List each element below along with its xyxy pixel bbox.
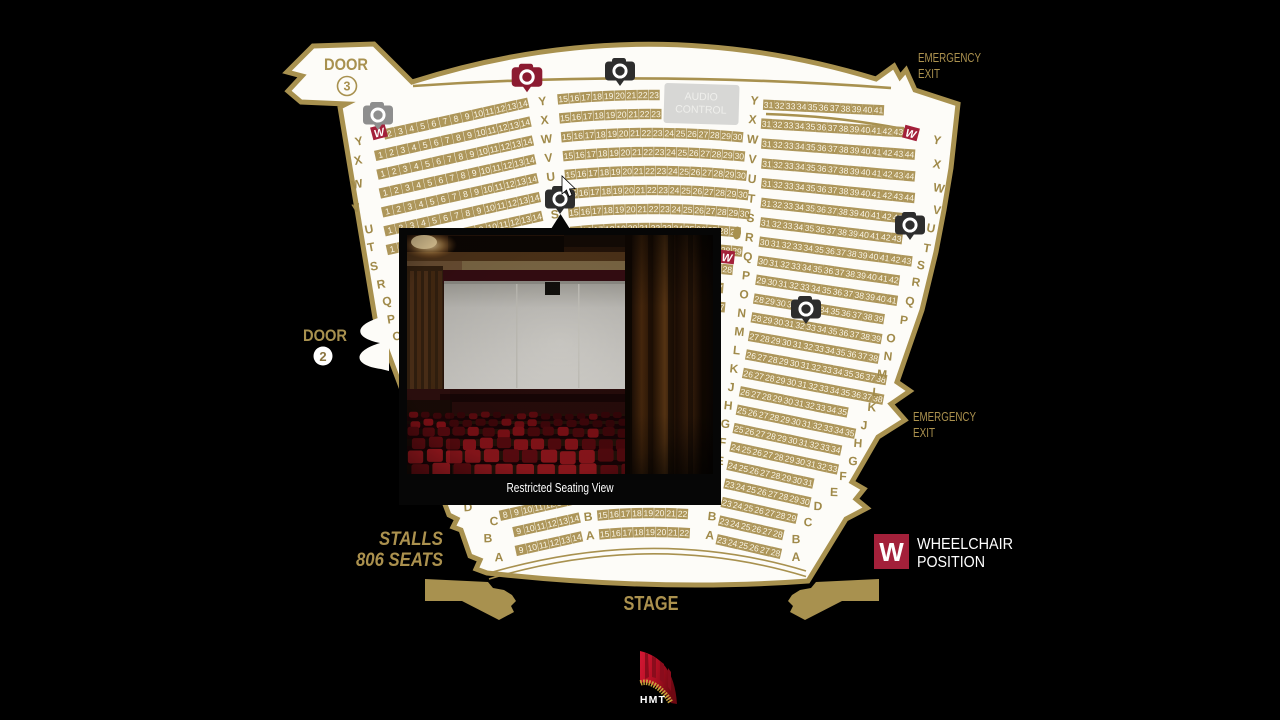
- svg-text:35: 35: [821, 285, 832, 296]
- svg-text:40: 40: [860, 125, 870, 136]
- svg-text:G: G: [848, 454, 858, 468]
- svg-text:Y: Y: [750, 93, 759, 108]
- svg-text:36: 36: [825, 245, 836, 256]
- svg-text:EMERGENCY: EMERGENCY: [918, 51, 982, 65]
- svg-text:26: 26: [692, 186, 702, 196]
- svg-text:40: 40: [860, 188, 871, 199]
- svg-text:STAGE: STAGE: [624, 593, 679, 615]
- svg-text:21: 21: [630, 128, 640, 138]
- svg-text:34: 34: [803, 242, 814, 253]
- svg-text:29: 29: [762, 314, 773, 325]
- svg-text:M: M: [876, 367, 887, 382]
- svg-text:U: U: [747, 172, 757, 187]
- svg-text:17: 17: [586, 149, 596, 160]
- svg-text:20: 20: [626, 204, 636, 214]
- svg-text:34: 34: [824, 345, 835, 357]
- svg-text:28: 28: [713, 168, 723, 179]
- svg-text:27: 27: [704, 187, 714, 198]
- svg-text:23: 23: [655, 147, 665, 157]
- svg-text:18: 18: [632, 508, 642, 518]
- svg-text:30: 30: [738, 189, 749, 200]
- svg-text:32: 32: [789, 280, 800, 291]
- svg-text:28: 28: [717, 207, 728, 218]
- svg-text:Q: Q: [743, 249, 754, 264]
- svg-text:3: 3: [344, 80, 351, 94]
- svg-text:34: 34: [794, 121, 804, 132]
- svg-text:W: W: [879, 537, 904, 567]
- svg-text:32: 32: [773, 179, 784, 190]
- svg-text:38: 38: [868, 352, 879, 364]
- svg-text:R: R: [744, 230, 754, 245]
- svg-text:31: 31: [762, 159, 773, 170]
- svg-text:15: 15: [562, 131, 573, 142]
- svg-text:V: V: [544, 151, 554, 166]
- svg-text:36: 36: [816, 122, 826, 133]
- svg-text:O: O: [885, 331, 896, 346]
- svg-text:U: U: [546, 169, 556, 184]
- svg-text:17: 17: [592, 205, 602, 216]
- svg-text:30: 30: [732, 131, 743, 142]
- svg-text:28: 28: [722, 264, 733, 275]
- svg-text:41: 41: [870, 230, 881, 241]
- svg-text:36: 36: [823, 265, 834, 276]
- svg-text:38: 38: [860, 331, 871, 342]
- svg-text:41: 41: [873, 105, 883, 115]
- svg-text:31: 31: [784, 318, 795, 329]
- svg-text:32: 32: [773, 119, 783, 130]
- svg-text:25: 25: [681, 186, 691, 196]
- svg-text:41: 41: [871, 168, 882, 179]
- svg-text:S: S: [746, 211, 755, 226]
- svg-text:41: 41: [879, 252, 890, 263]
- svg-text:15: 15: [598, 510, 609, 521]
- svg-text:17: 17: [583, 111, 593, 122]
- svg-text:22: 22: [649, 204, 659, 214]
- svg-text:X: X: [540, 113, 550, 128]
- svg-text:2: 2: [319, 349, 326, 364]
- svg-text:17: 17: [590, 187, 600, 198]
- svg-text:18: 18: [594, 110, 604, 121]
- svg-text:32: 32: [780, 259, 791, 270]
- svg-text:36: 36: [817, 143, 827, 154]
- svg-text:36: 36: [816, 184, 827, 195]
- svg-text:27: 27: [698, 129, 708, 140]
- svg-text:39: 39: [849, 207, 860, 218]
- svg-text:42: 42: [888, 274, 899, 285]
- svg-text:16: 16: [578, 187, 589, 198]
- svg-text:23: 23: [658, 185, 668, 195]
- svg-text:23: 23: [651, 109, 661, 119]
- svg-text:31: 31: [762, 119, 772, 130]
- svg-text:36: 36: [838, 327, 849, 338]
- svg-text:EXIT: EXIT: [918, 67, 940, 81]
- svg-text:35: 35: [805, 183, 816, 194]
- svg-text:39: 39: [849, 145, 859, 156]
- svg-text:V: V: [748, 152, 757, 167]
- svg-text:36: 36: [819, 102, 829, 112]
- svg-text:36: 36: [817, 163, 828, 174]
- svg-text:35: 35: [835, 346, 846, 358]
- svg-text:H: H: [853, 436, 863, 451]
- svg-text:19: 19: [643, 508, 653, 518]
- svg-text:30: 30: [789, 358, 800, 370]
- svg-text:E: E: [830, 485, 838, 499]
- svg-text:X: X: [748, 112, 757, 127]
- svg-text:42: 42: [881, 211, 892, 222]
- svg-text:G: G: [720, 416, 731, 431]
- svg-text:19: 19: [614, 205, 624, 215]
- svg-text:27: 27: [700, 148, 710, 159]
- svg-text:33: 33: [783, 120, 793, 131]
- svg-text:38: 38: [840, 103, 850, 113]
- svg-text:21: 21: [636, 185, 646, 195]
- svg-text:30: 30: [767, 277, 778, 288]
- svg-text:18: 18: [603, 205, 613, 215]
- svg-text:39: 39: [849, 124, 859, 135]
- svg-text:22: 22: [643, 147, 653, 157]
- svg-text:23: 23: [657, 166, 667, 176]
- svg-text:41: 41: [886, 295, 897, 306]
- svg-text:17: 17: [581, 92, 591, 103]
- svg-text:POSITION: POSITION: [917, 554, 985, 571]
- svg-text:35: 35: [812, 264, 823, 275]
- svg-text:32: 32: [771, 219, 782, 230]
- svg-text:A: A: [494, 550, 503, 564]
- svg-text:29: 29: [725, 169, 736, 180]
- svg-text:AUDIO: AUDIO: [684, 91, 718, 104]
- svg-text:37: 37: [827, 185, 838, 196]
- svg-text:39: 39: [871, 333, 882, 344]
- svg-text:HMT: HMT: [640, 694, 666, 706]
- svg-text:35: 35: [805, 121, 815, 132]
- svg-text:40: 40: [860, 209, 871, 220]
- svg-text:C: C: [804, 515, 813, 529]
- svg-text:39: 39: [850, 166, 861, 177]
- svg-text:43: 43: [891, 233, 902, 244]
- svg-text:42: 42: [882, 169, 893, 180]
- svg-text:20: 20: [624, 185, 634, 195]
- svg-text:21: 21: [634, 166, 644, 176]
- svg-text:26: 26: [746, 350, 757, 362]
- svg-text:17: 17: [622, 527, 632, 537]
- svg-text:J: J: [727, 380, 735, 395]
- svg-text:27: 27: [756, 352, 767, 364]
- svg-text:20: 20: [620, 147, 630, 157]
- svg-text:806 SEATS: 806 SEATS: [356, 550, 443, 571]
- svg-text:34: 34: [816, 323, 827, 334]
- svg-text:22: 22: [645, 166, 655, 176]
- svg-text:39: 39: [851, 104, 861, 114]
- svg-text:31: 31: [761, 198, 772, 209]
- svg-text:20: 20: [615, 90, 625, 100]
- svg-text:Q: Q: [904, 294, 915, 309]
- svg-text:28: 28: [767, 354, 778, 366]
- svg-text:41: 41: [878, 273, 889, 284]
- svg-text:37: 37: [829, 103, 839, 113]
- svg-text:EMERGENCY: EMERGENCY: [913, 410, 977, 424]
- svg-text:32: 32: [773, 139, 783, 150]
- svg-text:33: 33: [790, 261, 801, 272]
- svg-text:O: O: [739, 287, 750, 302]
- svg-text:42: 42: [881, 232, 892, 243]
- svg-text:32: 32: [811, 362, 822, 374]
- svg-text:15: 15: [563, 150, 574, 161]
- svg-text:22: 22: [679, 528, 689, 539]
- svg-text:43: 43: [893, 170, 904, 181]
- svg-text:37: 37: [826, 225, 837, 236]
- svg-text:31: 31: [762, 139, 772, 150]
- svg-text:23: 23: [660, 204, 670, 214]
- svg-text:37: 37: [851, 309, 862, 320]
- svg-text:20: 20: [655, 508, 665, 518]
- svg-text:N: N: [883, 349, 893, 364]
- svg-text:33: 33: [799, 281, 810, 292]
- svg-text:17: 17: [584, 130, 594, 141]
- svg-text:16: 16: [609, 509, 619, 520]
- svg-text:H: H: [723, 398, 733, 413]
- svg-text:36: 36: [815, 224, 826, 235]
- svg-text:38: 38: [839, 165, 850, 176]
- svg-text:B: B: [483, 531, 492, 545]
- svg-text:WHEELCHAIR: WHEELCHAIR: [917, 536, 1013, 553]
- svg-text:39: 39: [873, 313, 884, 324]
- svg-text:41: 41: [871, 125, 881, 136]
- svg-text:L: L: [872, 385, 881, 400]
- svg-text:31: 31: [762, 178, 773, 189]
- svg-text:40: 40: [861, 167, 872, 178]
- svg-text:35: 35: [805, 203, 816, 214]
- svg-text:32: 32: [772, 199, 783, 210]
- svg-text:M: M: [734, 324, 745, 339]
- svg-text:37: 37: [865, 372, 876, 384]
- svg-text:33: 33: [783, 200, 794, 211]
- svg-text:41: 41: [871, 210, 882, 221]
- svg-text:31: 31: [800, 360, 811, 372]
- svg-text:D: D: [813, 499, 822, 513]
- svg-text:42: 42: [882, 190, 893, 201]
- svg-text:36: 36: [841, 308, 852, 319]
- svg-text:33: 33: [806, 322, 817, 333]
- svg-text:21: 21: [627, 90, 637, 100]
- svg-text:23: 23: [649, 90, 659, 100]
- svg-text:B: B: [792, 532, 801, 546]
- svg-text:16: 16: [580, 206, 591, 217]
- svg-text:35: 35: [843, 368, 854, 380]
- svg-text:35: 35: [806, 142, 816, 153]
- svg-text:39: 39: [856, 270, 867, 281]
- svg-text:P: P: [741, 268, 750, 283]
- svg-text:21: 21: [632, 147, 642, 157]
- svg-text:29: 29: [770, 335, 781, 347]
- svg-text:35: 35: [808, 102, 818, 112]
- svg-text:44: 44: [904, 171, 915, 182]
- svg-text:33: 33: [784, 140, 794, 151]
- svg-text:16: 16: [611, 528, 621, 539]
- svg-text:19: 19: [607, 129, 617, 139]
- svg-text:34: 34: [794, 202, 805, 213]
- svg-text:19: 19: [613, 186, 623, 196]
- svg-text:24: 24: [666, 147, 676, 157]
- svg-text:32: 32: [795, 320, 806, 331]
- svg-text:19: 19: [645, 527, 655, 537]
- svg-text:20: 20: [622, 166, 632, 176]
- svg-text:37: 37: [843, 288, 854, 299]
- svg-text:44: 44: [904, 149, 914, 160]
- svg-text:24: 24: [664, 128, 674, 138]
- svg-text:16: 16: [569, 93, 580, 104]
- svg-text:29: 29: [765, 296, 776, 307]
- svg-text:33: 33: [782, 220, 793, 231]
- svg-text:29: 29: [726, 188, 737, 199]
- svg-text:J: J: [860, 418, 868, 432]
- svg-text:38: 38: [838, 206, 849, 217]
- svg-text:40: 40: [876, 293, 887, 304]
- svg-text:41: 41: [871, 189, 882, 200]
- svg-text:34: 34: [801, 262, 812, 273]
- svg-text:17: 17: [621, 508, 631, 518]
- svg-text:40: 40: [859, 229, 870, 240]
- svg-text:34: 34: [797, 101, 807, 111]
- svg-text:32: 32: [803, 341, 814, 353]
- svg-text:17: 17: [588, 168, 598, 179]
- svg-text:33: 33: [792, 241, 803, 252]
- svg-text:34: 34: [810, 283, 821, 294]
- svg-text:15: 15: [599, 529, 610, 540]
- svg-text:23: 23: [653, 128, 663, 138]
- svg-text:37: 37: [828, 164, 839, 175]
- svg-text:22: 22: [640, 109, 650, 119]
- svg-text:28: 28: [751, 313, 762, 324]
- svg-text:DOOR: DOOR: [324, 55, 368, 74]
- svg-text:15: 15: [560, 113, 571, 124]
- svg-text:44: 44: [904, 192, 915, 203]
- svg-text:A: A: [792, 550, 801, 564]
- svg-text:W: W: [746, 132, 759, 147]
- svg-text:29: 29: [728, 207, 739, 218]
- svg-text:18: 18: [596, 129, 606, 139]
- svg-text:28: 28: [711, 149, 721, 160]
- svg-text:27: 27: [702, 167, 712, 178]
- svg-text:21: 21: [628, 109, 638, 119]
- svg-text:27: 27: [749, 331, 760, 343]
- svg-text:24: 24: [668, 166, 678, 176]
- svg-text:29: 29: [723, 150, 734, 161]
- svg-text:18: 18: [634, 527, 644, 537]
- svg-text:34: 34: [795, 161, 806, 172]
- svg-text:33: 33: [784, 160, 795, 171]
- svg-text:24: 24: [670, 185, 680, 195]
- svg-text:19: 19: [605, 110, 615, 120]
- svg-text:34: 34: [832, 366, 843, 378]
- svg-text:24: 24: [671, 204, 681, 214]
- svg-text:20: 20: [619, 128, 629, 138]
- svg-text:33: 33: [784, 180, 795, 191]
- svg-text:40: 40: [867, 271, 878, 282]
- svg-text:26: 26: [689, 148, 699, 158]
- svg-text:28: 28: [759, 333, 770, 345]
- svg-text:31: 31: [792, 339, 803, 351]
- svg-text:43: 43: [893, 148, 903, 159]
- svg-text:K: K: [867, 400, 877, 415]
- svg-text:40: 40: [862, 104, 872, 114]
- svg-text:39: 39: [849, 187, 860, 198]
- svg-text:38: 38: [854, 290, 865, 301]
- svg-text:31: 31: [769, 257, 780, 268]
- svg-text:B: B: [707, 509, 717, 524]
- svg-text:P: P: [899, 313, 909, 328]
- svg-text:38: 38: [837, 227, 848, 238]
- svg-text:40: 40: [860, 146, 870, 157]
- svg-text:37: 37: [849, 329, 860, 340]
- svg-text:37: 37: [827, 123, 837, 134]
- svg-text:30: 30: [773, 316, 784, 327]
- svg-text:32: 32: [781, 240, 792, 251]
- svg-text:42: 42: [890, 254, 901, 265]
- svg-text:26: 26: [691, 167, 701, 177]
- svg-text:36: 36: [816, 204, 827, 215]
- svg-text:21: 21: [637, 204, 647, 214]
- svg-text:20: 20: [617, 109, 627, 119]
- svg-text:30: 30: [736, 170, 747, 181]
- svg-text:30: 30: [759, 237, 770, 248]
- svg-text:Y: Y: [538, 94, 548, 109]
- svg-text:EXIT: EXIT: [913, 426, 935, 440]
- svg-text:33: 33: [786, 101, 796, 111]
- svg-text:31: 31: [764, 100, 774, 110]
- svg-text:31: 31: [778, 278, 789, 289]
- svg-text:18: 18: [598, 148, 608, 158]
- svg-text:36: 36: [854, 370, 865, 382]
- svg-text:18: 18: [601, 186, 611, 196]
- svg-text:38: 38: [839, 144, 849, 155]
- svg-text:19: 19: [604, 91, 614, 101]
- svg-text:Restricted Seating View: Restricted Seating View: [507, 480, 614, 495]
- svg-text:35: 35: [827, 325, 838, 336]
- svg-text:35: 35: [830, 306, 841, 317]
- svg-text:30: 30: [758, 256, 769, 267]
- svg-text:21: 21: [666, 508, 676, 518]
- svg-text:36: 36: [832, 286, 843, 297]
- svg-text:41: 41: [871, 147, 881, 158]
- svg-text:39: 39: [848, 228, 859, 239]
- svg-text:A: A: [705, 528, 715, 543]
- svg-text:22: 22: [642, 128, 652, 138]
- svg-text:30: 30: [775, 297, 786, 308]
- svg-text:STALLS: STALLS: [379, 529, 443, 550]
- svg-text:22: 22: [638, 90, 648, 100]
- svg-text:F: F: [839, 469, 847, 483]
- svg-text:28: 28: [754, 294, 765, 305]
- svg-text:43: 43: [901, 255, 912, 266]
- svg-text:32: 32: [773, 160, 784, 171]
- svg-text:42: 42: [882, 126, 892, 137]
- svg-text:31: 31: [760, 217, 771, 228]
- svg-text:37: 37: [857, 350, 868, 362]
- svg-text:29: 29: [778, 356, 789, 368]
- svg-text:37: 37: [827, 205, 838, 216]
- svg-text:16: 16: [573, 131, 584, 142]
- svg-text:35: 35: [814, 244, 825, 255]
- svg-text:34: 34: [793, 221, 804, 232]
- svg-text:43: 43: [893, 191, 904, 202]
- svg-text:25: 25: [683, 205, 693, 215]
- svg-text:19: 19: [609, 148, 619, 158]
- svg-text:38: 38: [845, 268, 856, 279]
- svg-text:19: 19: [611, 167, 621, 177]
- svg-text:16: 16: [571, 112, 582, 123]
- svg-text:32: 32: [775, 100, 785, 110]
- svg-text:22: 22: [677, 509, 687, 519]
